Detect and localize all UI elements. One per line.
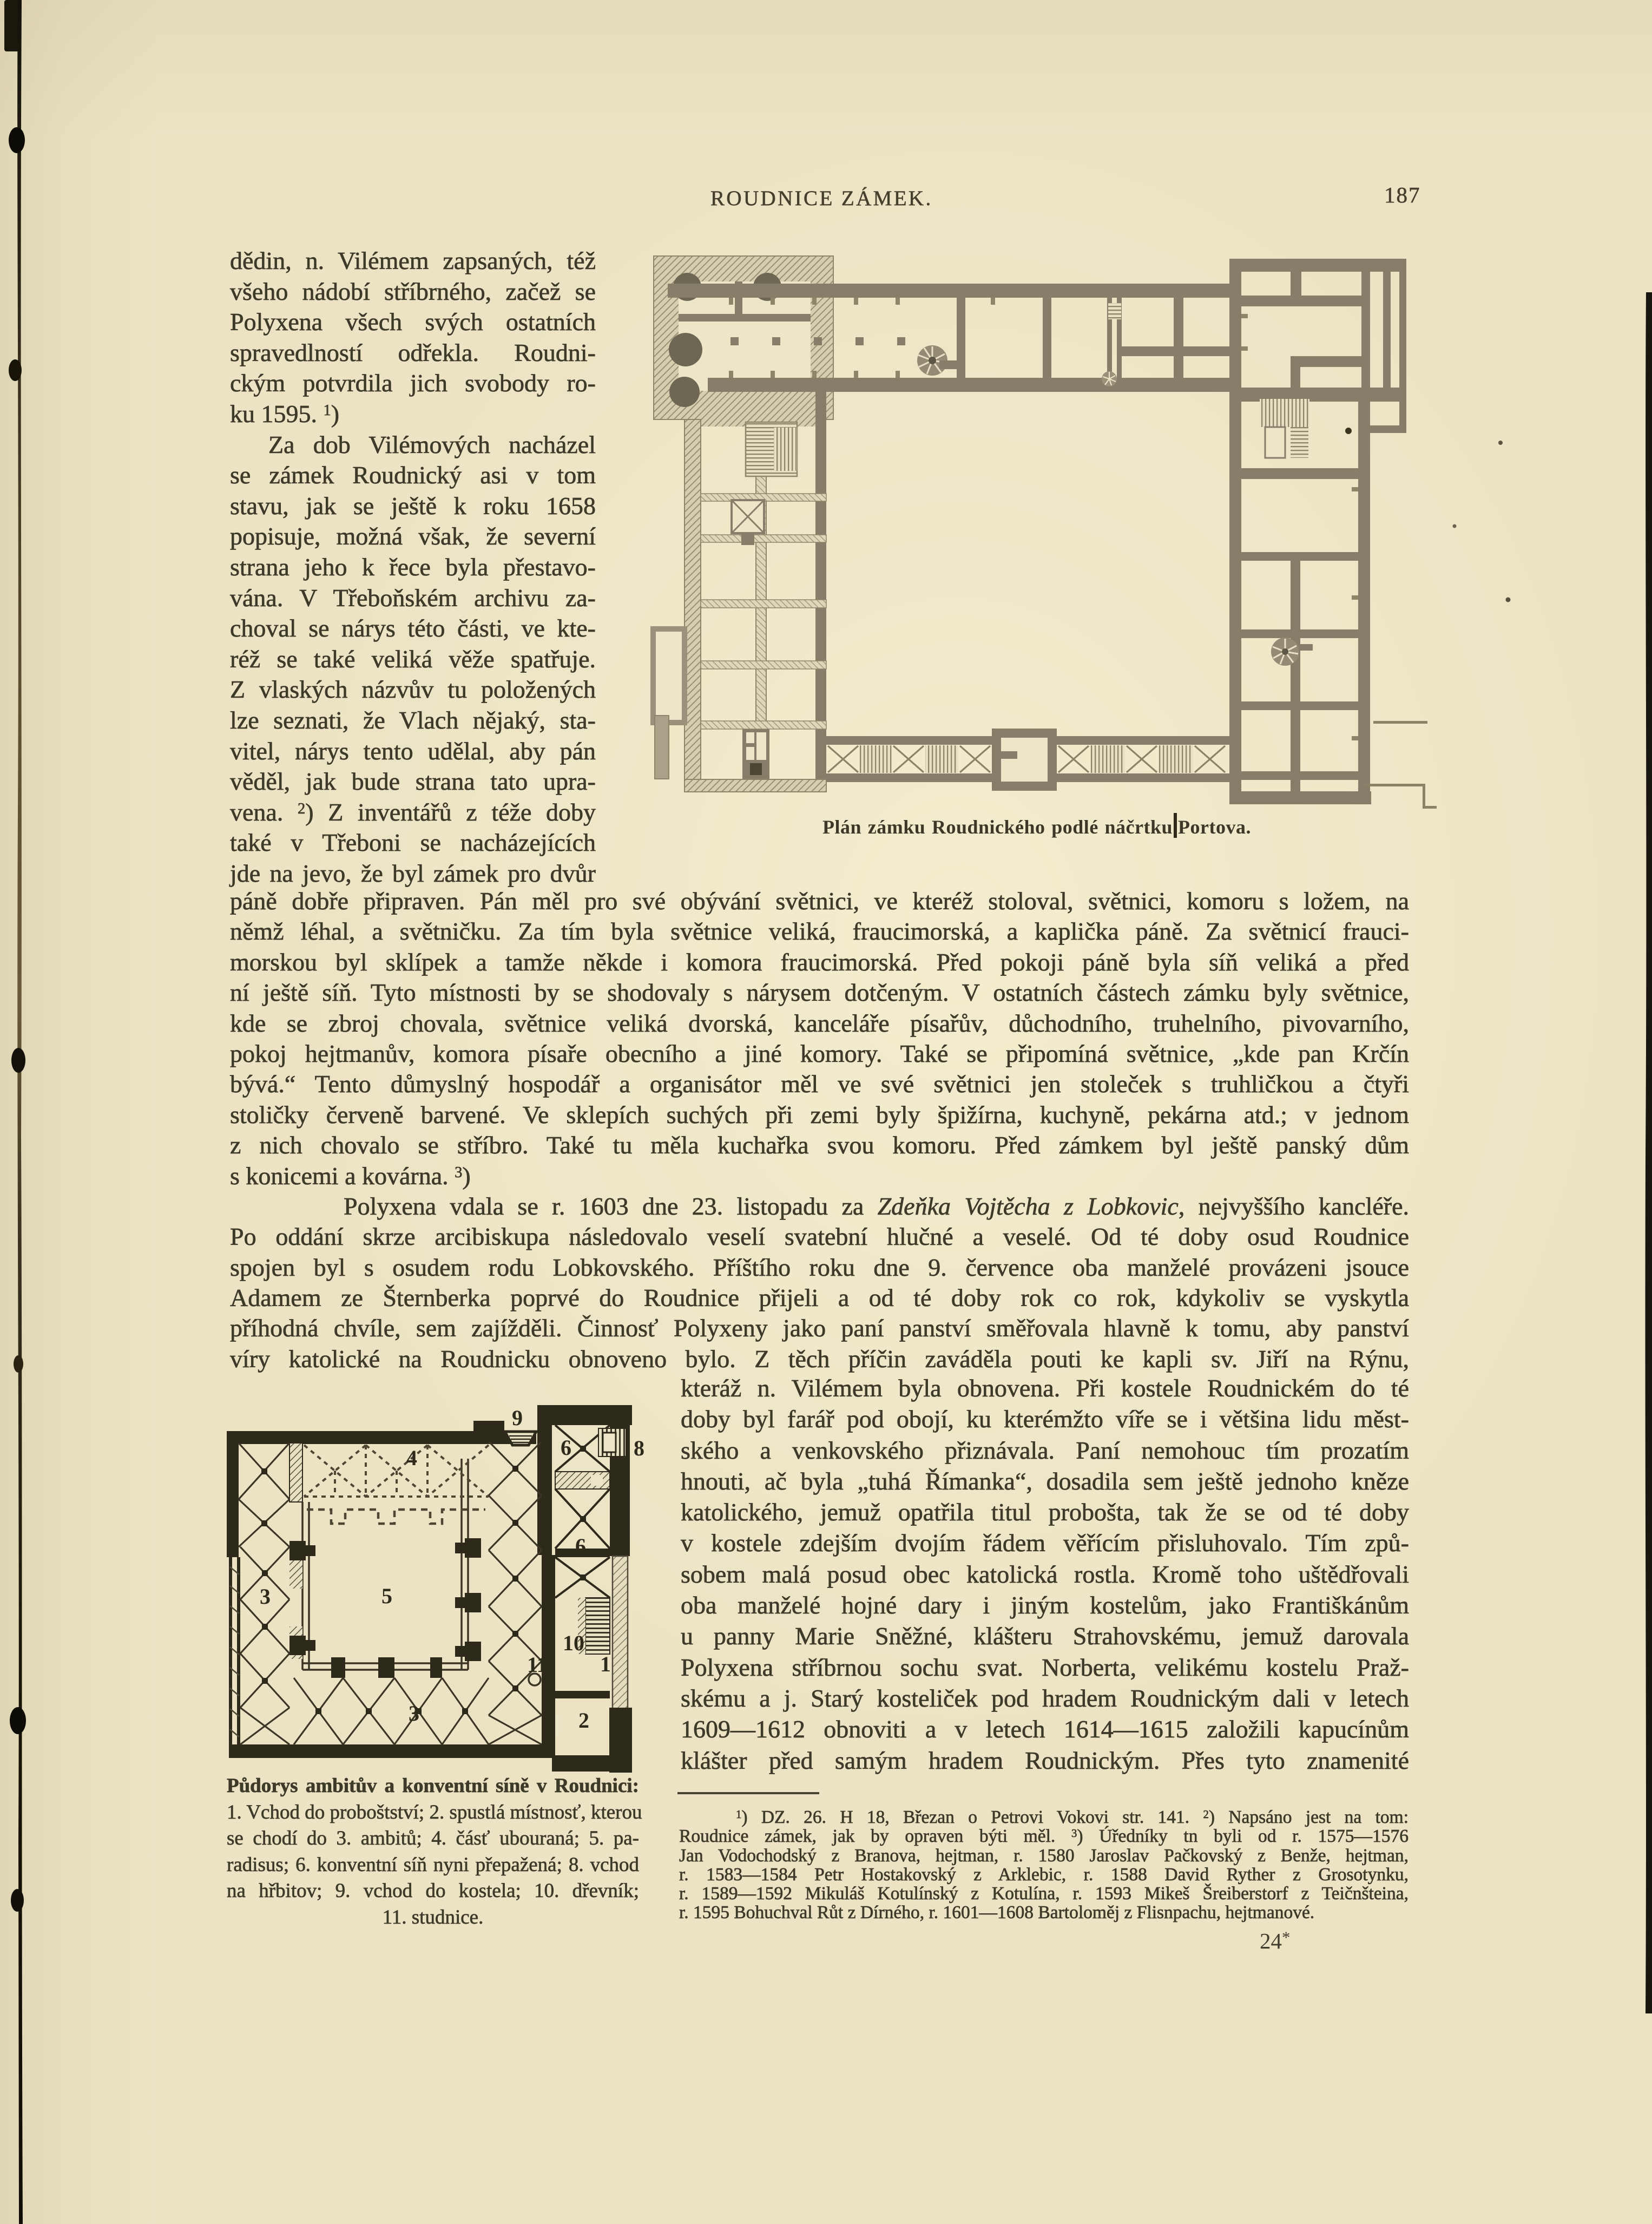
svg-text:8: 8 — [634, 1436, 644, 1460]
svg-text:2: 2 — [578, 1708, 589, 1733]
svg-text:4: 4 — [406, 1446, 417, 1470]
svg-text:6: 6 — [561, 1435, 571, 1460]
svg-text:3: 3 — [260, 1584, 271, 1609]
svg-text:5: 5 — [381, 1584, 392, 1608]
svg-text:10: 10 — [563, 1631, 584, 1655]
svg-text:11: 11 — [527, 1652, 548, 1677]
svg-text:1: 1 — [600, 1652, 611, 1676]
svg-text:9: 9 — [512, 1406, 523, 1430]
svg-text:3: 3 — [409, 1701, 419, 1726]
svg-text:6: 6 — [575, 1534, 586, 1558]
